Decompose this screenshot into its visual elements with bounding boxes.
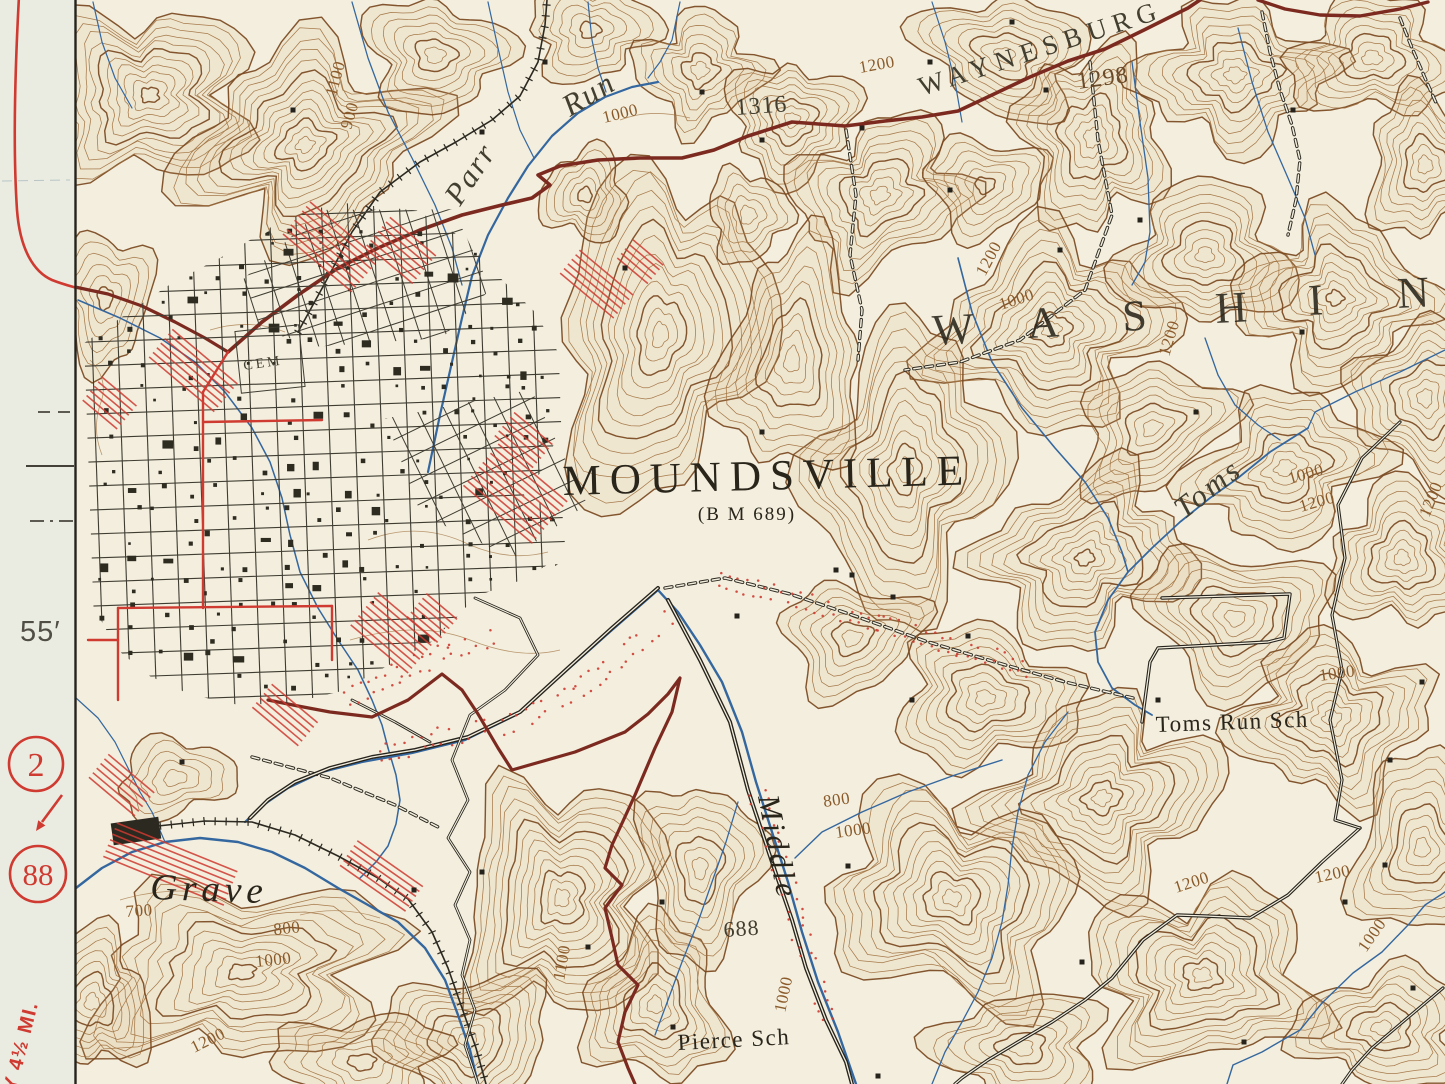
map-label-spot-688: 688 bbox=[723, 915, 761, 942]
map-label-contour-k: 1000 bbox=[770, 975, 796, 1014]
map-label-benchmark: (B M 689) bbox=[698, 504, 796, 525]
map-label-region-letter: N bbox=[1396, 267, 1430, 318]
map-art: MOUNDSVILLE(B M 689)WASHINWAYNESBURGParr… bbox=[19, 0, 1445, 1084]
map-label-school-toms-run: Toms Run Sch bbox=[1155, 707, 1309, 737]
margin-paper bbox=[0, 0, 75, 1084]
map-label-spot-1316: 1316 bbox=[735, 91, 789, 121]
map-label-region-letter: A bbox=[1026, 297, 1061, 348]
route-number-88: 88 bbox=[23, 857, 54, 892]
map-label-contour-d: 1200 bbox=[857, 52, 896, 77]
map-label-region-letter: W bbox=[931, 304, 976, 355]
topo-map-image: MOUNDSVILLE(B M 689)WASHINWAYNESBURGParr… bbox=[0, 0, 1445, 1084]
map-label-contour-m: 800 bbox=[272, 917, 301, 939]
map-label-contour-l: 700 bbox=[125, 900, 153, 921]
map-label-region-letter: S bbox=[1121, 291, 1148, 341]
topo-map-sheet: MOUNDSVILLE(B M 689)WASHINWAYNESBURGParr… bbox=[0, 0, 1445, 1084]
latitude-minute-label: 55′ bbox=[20, 616, 61, 648]
map-label-stream-grave: Grave bbox=[150, 867, 269, 912]
map-label-region-letter: H bbox=[1214, 282, 1248, 333]
route-number-2: 2 bbox=[28, 747, 45, 784]
map-label-region-letter: I bbox=[1307, 275, 1324, 325]
map-label-contour-c: 1000 bbox=[600, 100, 640, 127]
map-margin: 55′ 2 88 Y 4½ MI. bbox=[0, 0, 77, 1084]
map-label-contour-q: 800 bbox=[822, 788, 851, 811]
map-label-school-pierce: Pierce Sch bbox=[677, 1024, 791, 1055]
map-label-contour-n: 1000 bbox=[254, 948, 292, 971]
